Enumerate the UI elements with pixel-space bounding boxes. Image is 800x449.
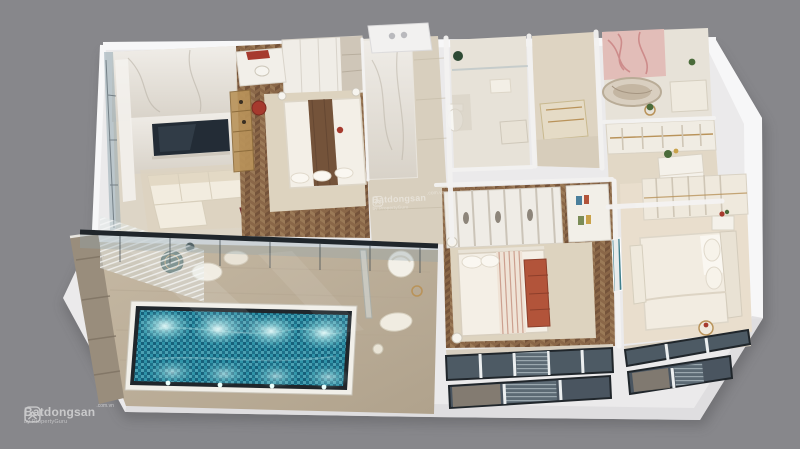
bedside-lamp (452, 333, 462, 343)
bathroom-1 (447, 36, 530, 168)
bedroom-3 (612, 174, 752, 344)
vanity (500, 120, 528, 144)
nightstand (278, 92, 286, 100)
master-bedroom (230, 36, 370, 238)
book-shelf (566, 184, 611, 242)
red-pouf (252, 101, 266, 115)
bath2-vanity (670, 80, 708, 112)
round-tray (373, 344, 383, 354)
slatted-wardrobe (444, 187, 563, 248)
wardrobe-shelving (606, 120, 716, 154)
gold-side-table (699, 321, 713, 335)
towel (490, 79, 511, 93)
bedroom3-bed (640, 231, 742, 330)
foyer-bench (540, 100, 588, 140)
floorplan-render: Batdongsan .com.vn by PropertyGuru Batdo… (0, 0, 800, 449)
entrance-landing (368, 23, 432, 53)
bathroom-2 (602, 28, 712, 122)
floorplan-scene (0, 0, 800, 449)
bedroom-2 (442, 182, 615, 348)
pool-terrace (70, 216, 438, 414)
desk (236, 48, 286, 86)
master-bed (284, 98, 366, 188)
bathtub (603, 78, 661, 106)
hallway (362, 23, 452, 246)
bedroom2-bed (458, 246, 550, 336)
nightstand (352, 88, 360, 96)
master-wardrobe (282, 36, 364, 98)
gold-shelf (230, 90, 254, 172)
bed-flowers (337, 127, 343, 133)
hall-marble-wall (362, 37, 418, 180)
pink-marble-wall (602, 29, 666, 80)
foyer (532, 32, 600, 168)
shower-head (453, 51, 463, 61)
bedroom3-wardrobe (642, 174, 748, 220)
